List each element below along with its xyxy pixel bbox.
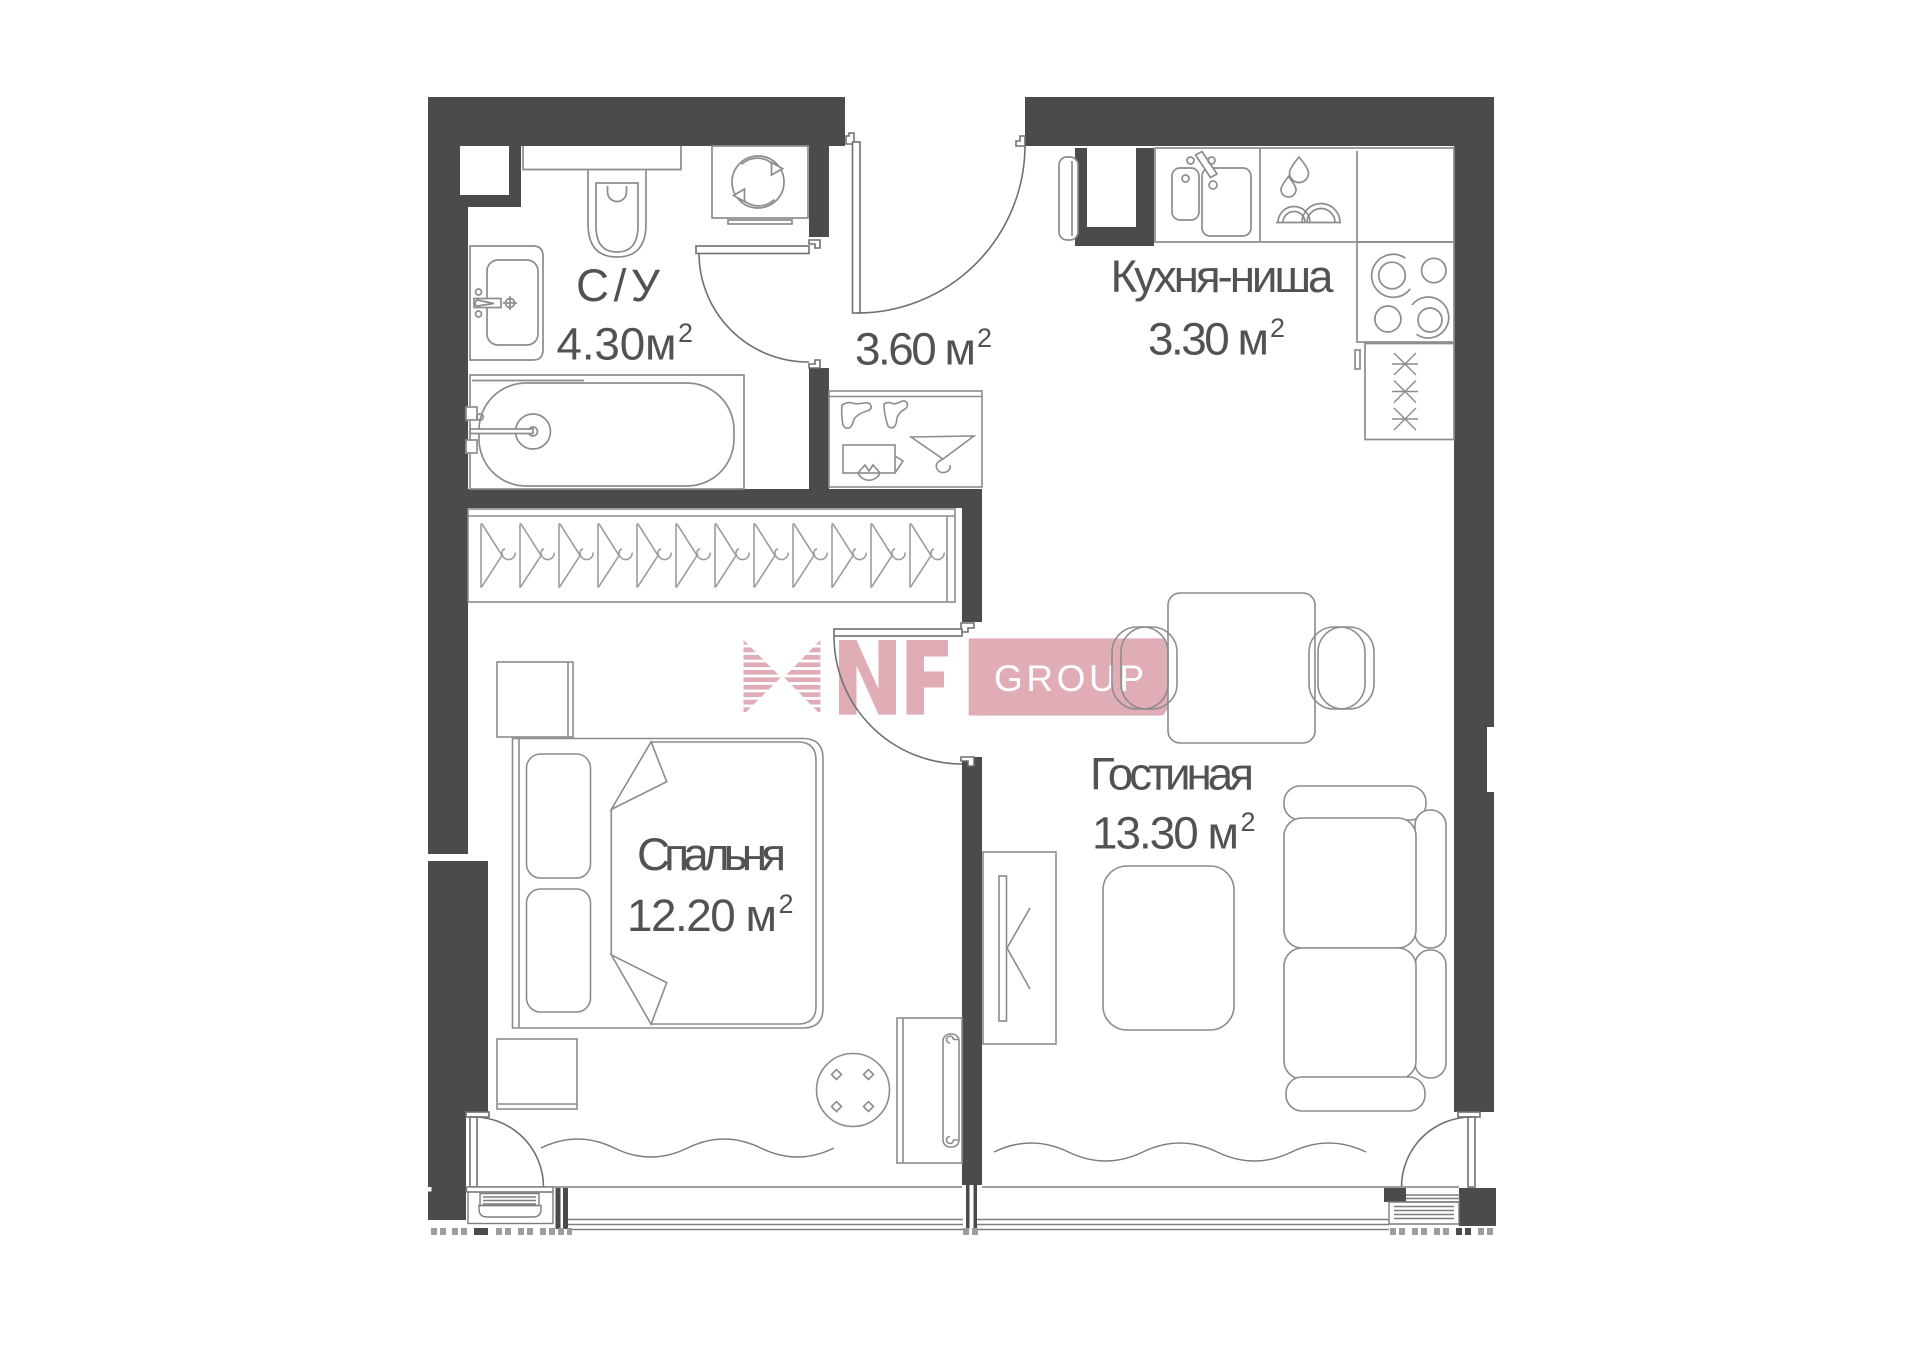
svg-text:12.20 м: 12.20 м: [627, 890, 777, 941]
svg-text:Кухня-ниша: Кухня-ниша: [1111, 251, 1335, 302]
svg-text:3.60 м: 3.60 м: [855, 324, 976, 375]
svg-text:2: 2: [779, 889, 794, 919]
svg-text:Спальня: Спальня: [637, 829, 786, 880]
svg-text:2: 2: [977, 323, 992, 353]
svg-text:2: 2: [1241, 807, 1256, 837]
svg-text:Гостиная: Гостиная: [1090, 749, 1254, 800]
svg-text:4.30м: 4.30м: [557, 319, 677, 370]
svg-text:С/У: С/У: [576, 260, 661, 311]
svg-text:2: 2: [1270, 313, 1285, 343]
svg-text:13.30 м: 13.30 м: [1092, 808, 1239, 859]
svg-text:3.30 м: 3.30 м: [1148, 314, 1269, 365]
svg-text:2: 2: [678, 318, 693, 348]
